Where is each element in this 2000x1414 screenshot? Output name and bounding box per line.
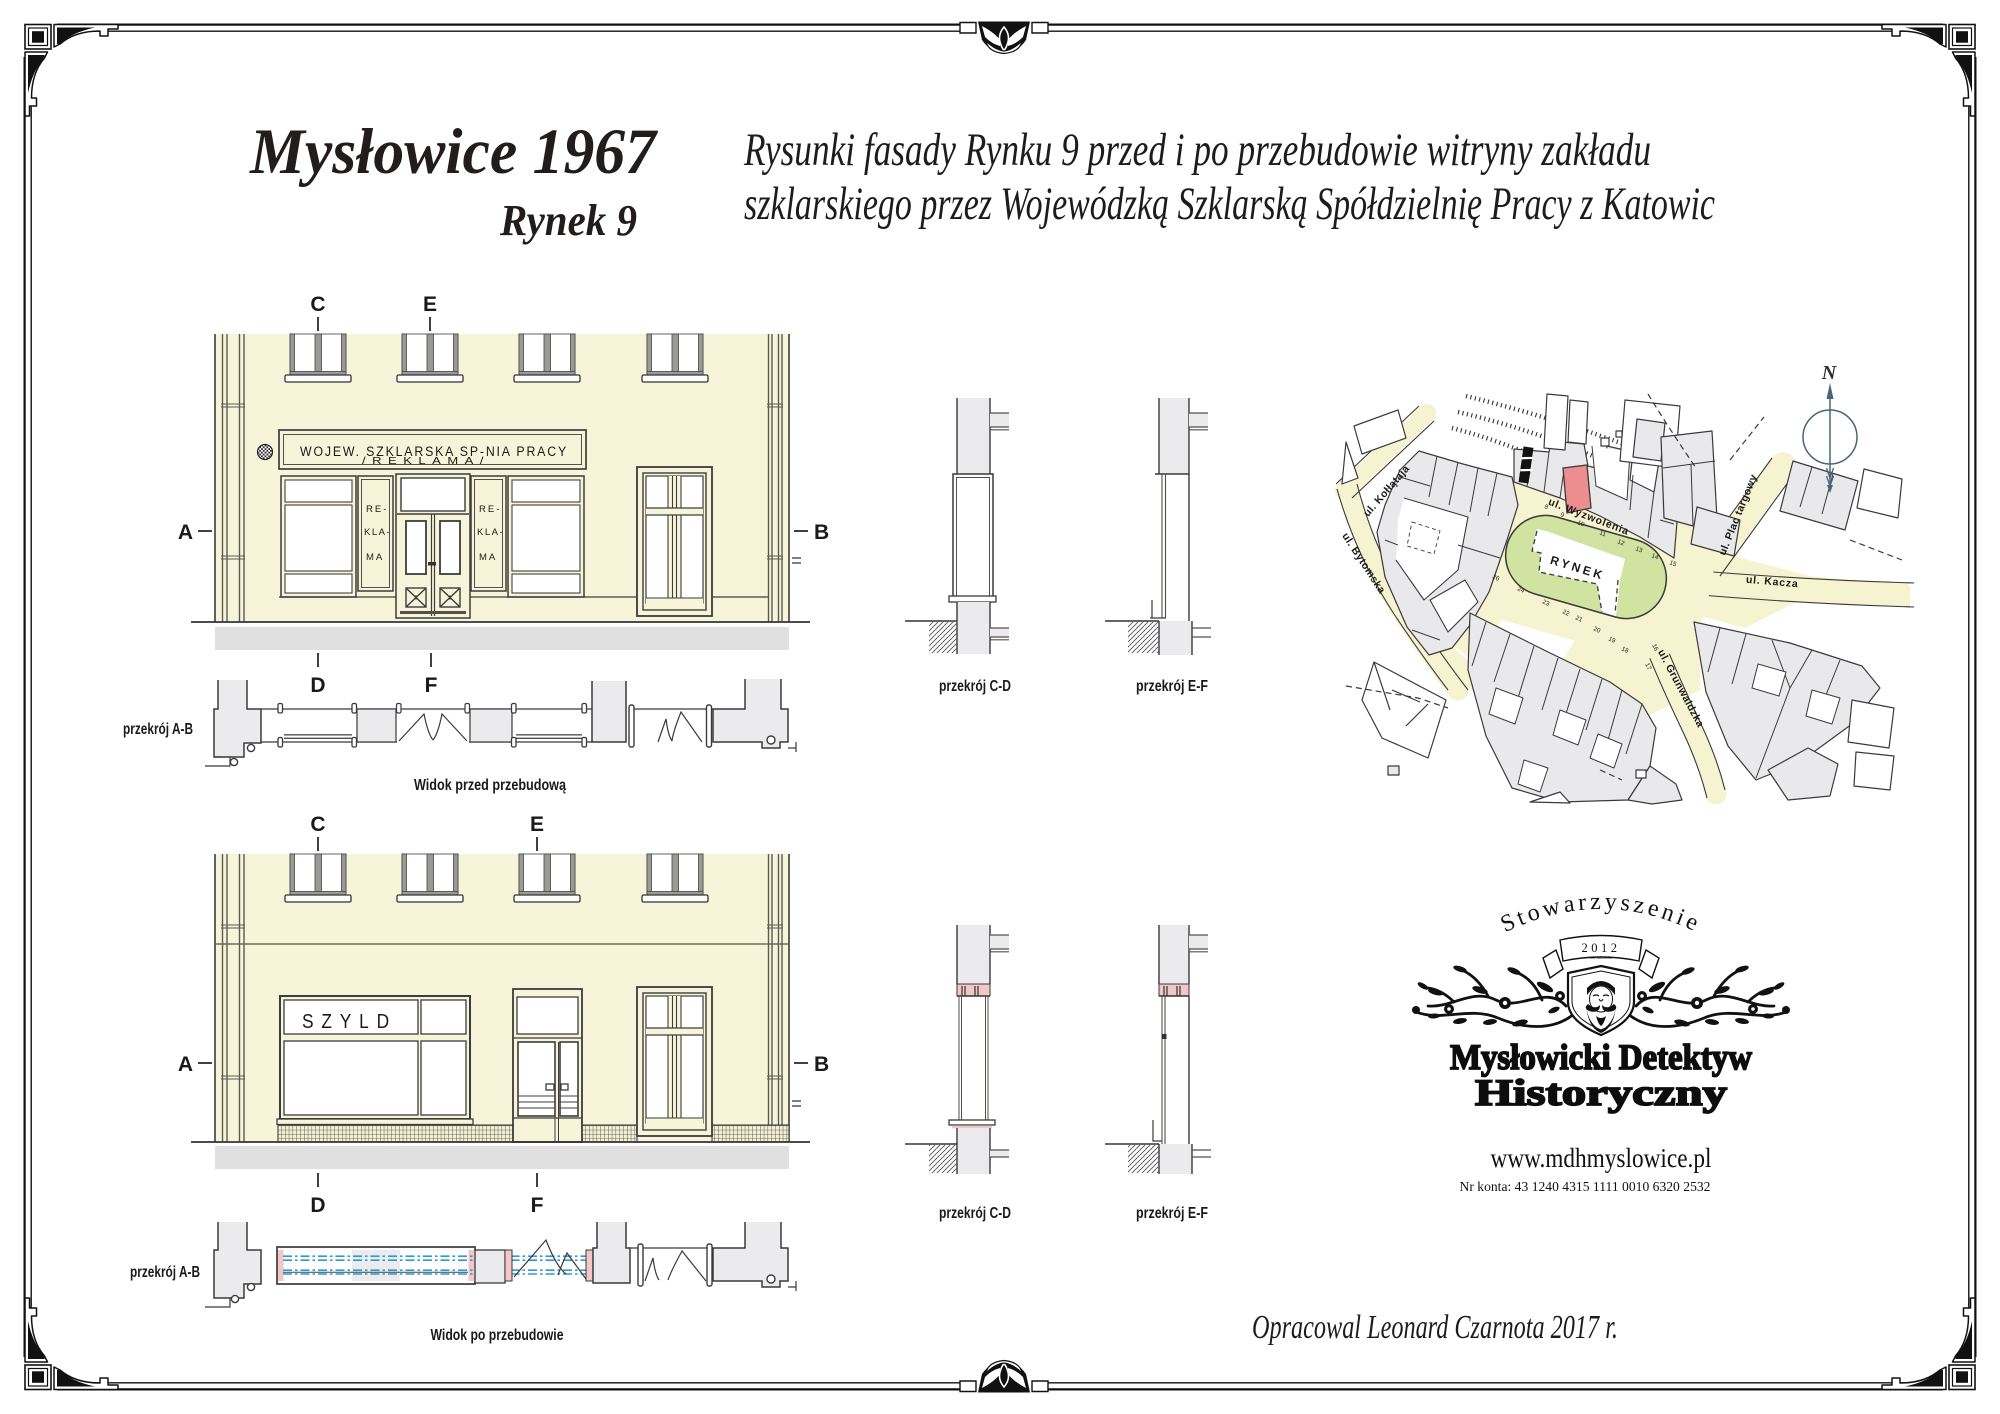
svg-text:Rynek 9: Rynek 9 (499, 196, 637, 245)
svg-text:szklarskiego przez Wojewódzką: szklarskiego przez Wojewódzką Szklarską … (744, 178, 1715, 230)
svg-text:E: E (530, 813, 544, 836)
svg-text:SZYLD: SZYLD (302, 1011, 397, 1033)
svg-text:KLA-: KLA- (364, 527, 391, 538)
svg-text:A: A (178, 521, 193, 544)
svg-text:F: F (425, 674, 438, 697)
svg-text:C: C (310, 293, 325, 316)
svg-text:F: F (531, 1194, 544, 1217)
svg-text:przekrój C-D: przekrój C-D (939, 678, 1011, 695)
svg-text:MA: MA (479, 552, 497, 563)
svg-text:A: A (178, 1053, 193, 1076)
svg-text:przekrój A-B: przekrój A-B (130, 1264, 200, 1281)
svg-text:C: C (310, 813, 325, 836)
svg-text:Mysłowicki Detektyw: Mysłowicki Detektyw (1450, 1037, 1752, 1077)
svg-text:D: D (310, 674, 325, 697)
svg-text:Historyczny: Historyczny (1475, 1073, 1728, 1114)
svg-text:2012: 2012 (1582, 941, 1621, 955)
svg-text:N: N (1821, 362, 1838, 384)
svg-text:przekrój A-B: przekrój A-B (123, 721, 193, 738)
svg-text:Mysłowice 1967: Mysłowice 1967 (249, 116, 658, 188)
svg-text:/REKLAMA/: /REKLAMA/ (362, 456, 490, 467)
svg-text:www.mdhmyslowice.pl: www.mdhmyslowice.pl (1491, 1143, 1712, 1173)
svg-text:D: D (310, 1194, 325, 1217)
svg-text:B: B (814, 521, 829, 544)
svg-text:przekrój C-D: przekrój C-D (939, 1205, 1011, 1222)
svg-text:RE-: RE- (366, 504, 388, 515)
svg-text:przekrój E-F: przekrój E-F (1136, 678, 1208, 695)
svg-text:KLA-: KLA- (477, 527, 504, 538)
svg-text:rok założenia: rok założenia (1590, 955, 1613, 960)
svg-text:B: B (814, 1053, 829, 1076)
svg-text:Widok przed przebudową: Widok przed przebudową (414, 777, 566, 794)
svg-text:Nr konta: 43 1240 4315 1111 00: Nr konta: 43 1240 4315 1111 0010 6320 25… (1460, 1179, 1711, 1194)
svg-text:Rysunki fasady Rynku 9 przed i: Rysunki fasady Rynku 9 przed i po przebu… (743, 124, 1651, 176)
svg-text:przekrój E-F: przekrój E-F (1136, 1205, 1208, 1222)
svg-text:RE-: RE- (479, 504, 501, 515)
svg-text:Opracowal Leonard Czarnota 201: Opracowal Leonard Czarnota 2017 r. (1252, 1309, 1618, 1346)
svg-text:Widok po przebudowie: Widok po przebudowie (431, 1327, 564, 1344)
svg-text:MA: MA (366, 552, 384, 563)
svg-text:E: E (423, 293, 437, 316)
